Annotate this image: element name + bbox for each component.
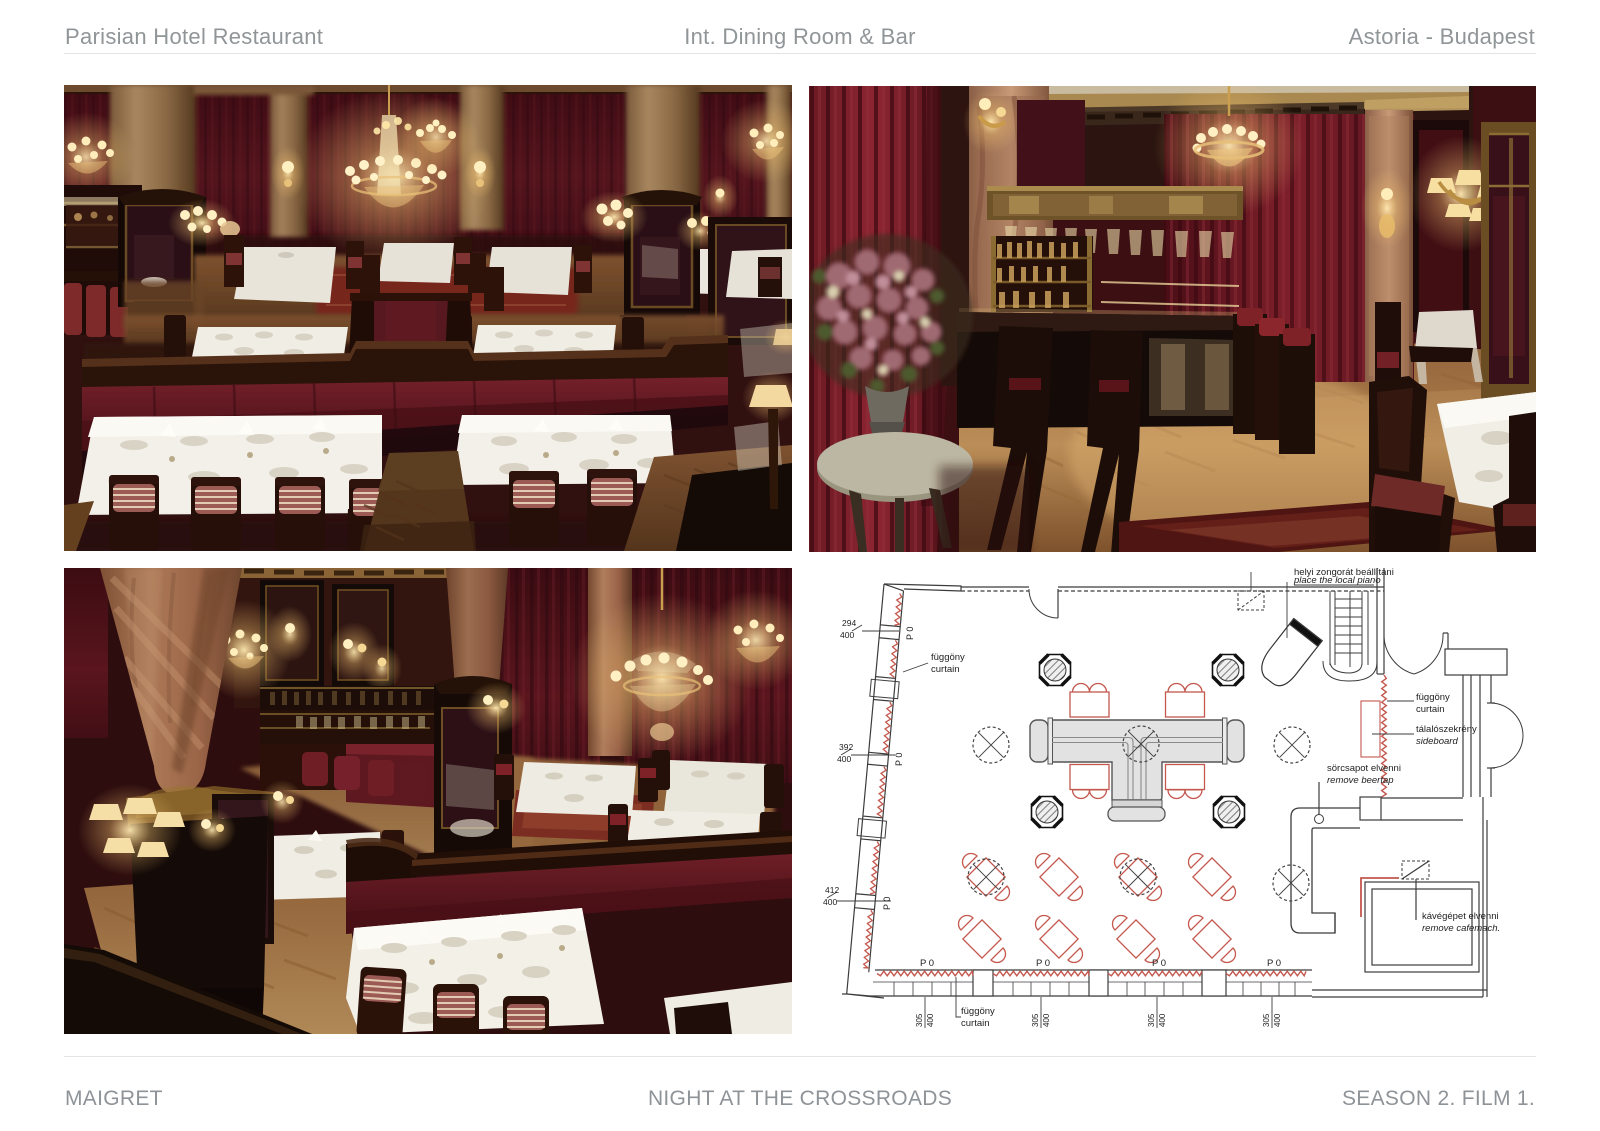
svg-text:400: 400: [840, 630, 854, 640]
svg-text:függöny: függöny: [1416, 692, 1450, 703]
svg-text:remove cafemach.: remove cafemach.: [1422, 923, 1500, 934]
svg-text:sideboard: sideboard: [1416, 736, 1458, 747]
svg-text:400: 400: [837, 754, 851, 764]
svg-text:függöny: függöny: [961, 1006, 995, 1017]
svg-text:392: 392: [839, 742, 853, 752]
svg-text:412: 412: [825, 885, 839, 895]
svg-text:kávégépet elvenni: kávégépet elvenni: [1422, 911, 1499, 922]
svg-text:305: 305: [1262, 1013, 1271, 1027]
svg-text:400: 400: [823, 897, 837, 907]
svg-text:305: 305: [1031, 1013, 1040, 1027]
svg-text:P 0: P 0: [882, 897, 892, 910]
svg-text:remove beertap: remove beertap: [1327, 775, 1394, 786]
svg-text:tálalószekrény: tálalószekrény: [1416, 724, 1477, 735]
svg-text:400: 400: [1158, 1013, 1167, 1027]
svg-text:P 0: P 0: [894, 753, 904, 766]
svg-text:P 0: P 0: [920, 958, 934, 969]
svg-text:400: 400: [1042, 1013, 1051, 1027]
svg-text:P 0: P 0: [1152, 958, 1166, 969]
svg-text:curtain: curtain: [961, 1018, 990, 1029]
svg-text:sörcsapot elvenni: sörcsapot elvenni: [1327, 763, 1401, 774]
svg-text:400: 400: [1273, 1013, 1282, 1027]
svg-text:P 0: P 0: [905, 627, 915, 640]
svg-text:curtain: curtain: [1416, 704, 1445, 715]
svg-text:P 0: P 0: [1267, 958, 1281, 969]
svg-text:függöny: függöny: [931, 652, 965, 663]
svg-text:305: 305: [915, 1013, 924, 1027]
svg-text:294: 294: [842, 618, 856, 628]
svg-text:curtain: curtain: [931, 664, 960, 675]
svg-text:place the local piano: place the local piano: [1293, 575, 1381, 586]
svg-text:P 0: P 0: [1036, 958, 1050, 969]
svg-text:305: 305: [1147, 1013, 1156, 1027]
svg-text:400: 400: [926, 1013, 935, 1027]
